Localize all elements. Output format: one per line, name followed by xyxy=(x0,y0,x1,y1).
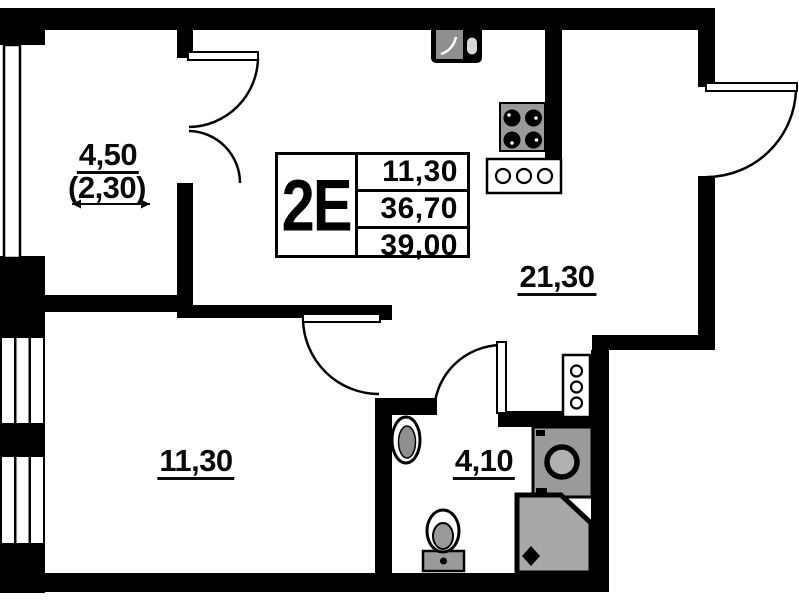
wall-bedroom-right-lower xyxy=(375,398,392,573)
balcony-glazing-window xyxy=(4,45,20,258)
wall-right-inner xyxy=(591,350,609,592)
balcony-reduced-area-label: (2,30) xyxy=(66,172,148,203)
unit-info-card: 2E 11,30 36,70 39,00 xyxy=(275,152,470,258)
unit-area-living: 11,30 xyxy=(358,155,467,192)
washing-machine xyxy=(533,427,592,497)
stove-four-burner xyxy=(500,103,545,151)
balcony-area-label: 4,50 xyxy=(77,139,139,174)
wall-top-exterior xyxy=(0,8,715,30)
bedroom-area-label: 11,30 xyxy=(157,445,234,480)
wall-right-exterior xyxy=(698,176,715,350)
bedroom-window-upper xyxy=(2,338,43,423)
shower-cabin xyxy=(517,495,591,573)
bathroom-area-label: 4,10 xyxy=(453,445,515,480)
wall-right-jog xyxy=(592,335,715,350)
unit-area-no-balcony: 36,70 xyxy=(358,192,467,229)
wall-bathroom-top-left xyxy=(375,398,437,415)
unit-area-rows: 11,30 36,70 39,00 xyxy=(358,155,467,255)
wall-balcony-right-lower xyxy=(177,183,193,312)
kitchen-vent-shaft xyxy=(545,25,562,158)
bedroom-door xyxy=(303,314,380,394)
kitchen-sink xyxy=(431,24,482,63)
balcony-door xyxy=(188,52,258,183)
entry-door xyxy=(706,83,797,177)
unit-type-cell: 2E xyxy=(278,155,358,255)
floor-plan: 4,50 (2,30) 21,30 11,30 4,10 2E 11,30 36… xyxy=(0,0,799,600)
hall-hook-rack xyxy=(563,355,590,417)
unit-type-label: 2E xyxy=(282,162,351,247)
toilet xyxy=(423,510,464,571)
wall-balcony-right-top-stub xyxy=(177,8,193,58)
washbasin xyxy=(392,417,420,463)
wall-top-left-corner xyxy=(0,8,45,45)
bathroom-door xyxy=(434,342,506,413)
wall-bottom-exterior xyxy=(0,573,609,592)
wall-right-entry-stub xyxy=(698,8,715,87)
unit-area-total: 39,00 xyxy=(358,229,467,263)
cooktop-three-ring xyxy=(487,159,561,193)
bedroom-window-lower xyxy=(2,457,43,543)
living-kitchen-area-label: 21,30 xyxy=(517,261,596,296)
wall-left-mid-block xyxy=(0,256,45,338)
wall-balcony-bottom xyxy=(45,295,177,312)
floor-plan-drawing xyxy=(0,0,799,600)
